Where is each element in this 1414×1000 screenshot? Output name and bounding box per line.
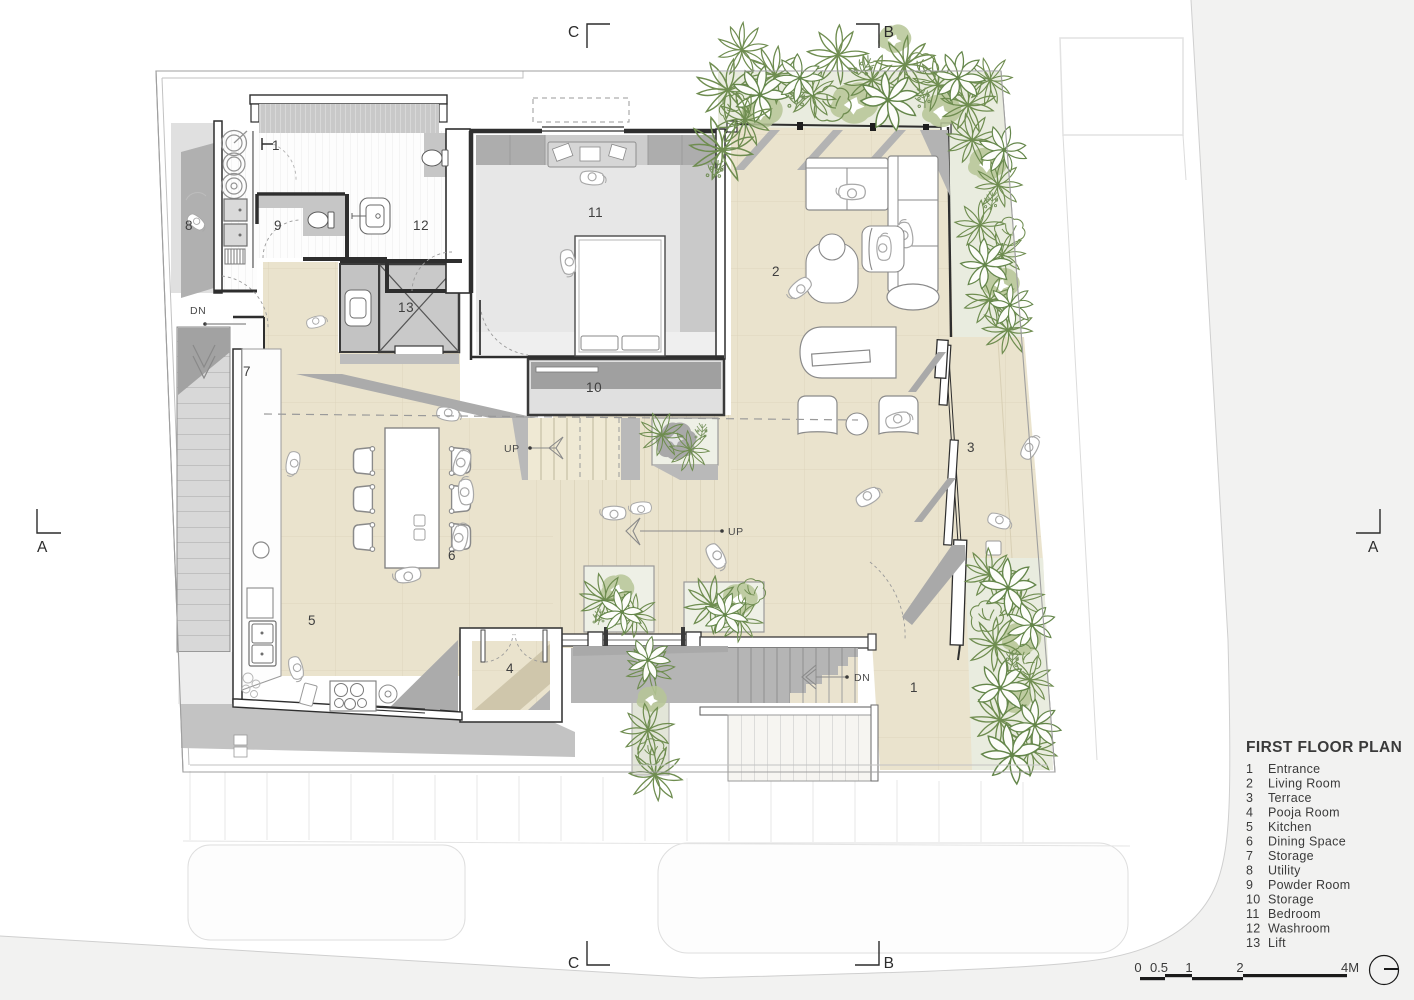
svg-text:Storage: Storage (1268, 849, 1314, 863)
svg-text:Terrace: Terrace (1268, 791, 1312, 805)
svg-text:Living Room: Living Room (1268, 777, 1341, 791)
svg-text:Lift: Lift (1268, 936, 1286, 950)
svg-text:1: 1 (1246, 762, 1253, 776)
svg-text:A: A (37, 539, 48, 556)
svg-text:13: 13 (398, 300, 414, 315)
svg-text:4M: 4M (1341, 960, 1359, 975)
svg-text:Washroom: Washroom (1268, 922, 1330, 936)
svg-text:8: 8 (1246, 864, 1253, 878)
svg-text:FIRST FLOOR PLAN: FIRST FLOOR PLAN (1246, 739, 1402, 756)
svg-text:2: 2 (1246, 777, 1253, 791)
svg-text:DN: DN (190, 305, 206, 317)
svg-text:Pooja Room: Pooja Room (1268, 806, 1340, 820)
svg-text:5: 5 (1246, 820, 1253, 834)
svg-text:0.5: 0.5 (1150, 960, 1168, 975)
svg-text:6: 6 (448, 548, 456, 563)
svg-text:9: 9 (274, 218, 282, 233)
svg-text:10: 10 (586, 380, 602, 395)
svg-text:DN: DN (854, 672, 870, 684)
svg-text:Storage: Storage (1268, 893, 1314, 907)
svg-text:A: A (1368, 539, 1379, 556)
svg-text:4: 4 (1246, 806, 1253, 820)
svg-text:Entrance: Entrance (1268, 762, 1320, 776)
svg-text:1: 1 (1185, 960, 1192, 975)
svg-text:11: 11 (1246, 907, 1260, 921)
svg-text:C: C (568, 955, 579, 972)
svg-text:12: 12 (413, 218, 429, 233)
svg-text:1: 1 (272, 138, 280, 153)
svg-text:3: 3 (1246, 791, 1253, 805)
svg-text:2: 2 (772, 264, 780, 279)
svg-text:Powder Room: Powder Room (1268, 878, 1351, 892)
svg-text:9: 9 (1246, 878, 1253, 892)
svg-text:4: 4 (506, 661, 514, 676)
svg-text:B: B (884, 955, 894, 972)
svg-text:10: 10 (1246, 893, 1261, 907)
svg-text:Kitchen: Kitchen (1268, 820, 1312, 834)
svg-text:Bedroom: Bedroom (1268, 907, 1321, 921)
svg-text:2: 2 (1236, 960, 1243, 975)
svg-text:1: 1 (910, 680, 918, 695)
svg-text:B: B (884, 24, 894, 41)
svg-text:6: 6 (1246, 835, 1253, 849)
svg-text:13: 13 (1246, 936, 1261, 950)
svg-text:0: 0 (1134, 960, 1141, 975)
svg-text:C: C (568, 24, 579, 41)
svg-text:11: 11 (588, 205, 603, 220)
svg-text:Dining Space: Dining Space (1268, 835, 1346, 849)
svg-text:UP: UP (504, 443, 520, 455)
svg-text:UP: UP (728, 526, 744, 538)
svg-text:7: 7 (1246, 849, 1253, 863)
svg-text:5: 5 (308, 613, 316, 628)
svg-text:7: 7 (243, 364, 251, 379)
svg-text:12: 12 (1246, 922, 1261, 936)
svg-text:8: 8 (185, 218, 193, 233)
svg-text:Utility: Utility (1268, 864, 1301, 878)
svg-text:3: 3 (967, 440, 975, 455)
